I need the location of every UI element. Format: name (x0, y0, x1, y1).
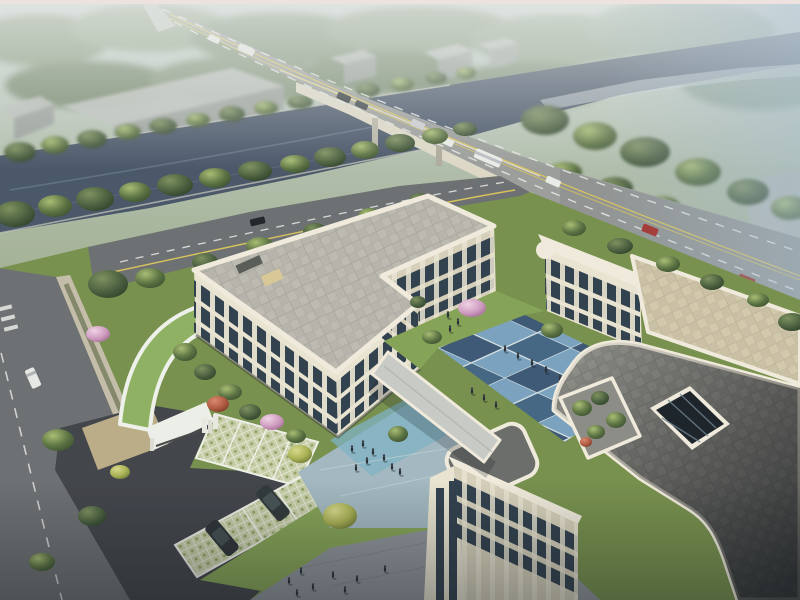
rendering-canvas (0, 0, 800, 600)
blossom-tree (86, 326, 110, 342)
blossom-tree (260, 414, 284, 430)
red-maple-tree (207, 396, 229, 412)
rounded-corner (536, 241, 554, 259)
vignette (0, 480, 800, 600)
frame-border-top (0, 0, 800, 4)
blossom-tree (458, 299, 486, 317)
gate-pillar (213, 414, 218, 429)
gate-pillar (202, 418, 207, 433)
aerial-rendering (0, 0, 800, 600)
